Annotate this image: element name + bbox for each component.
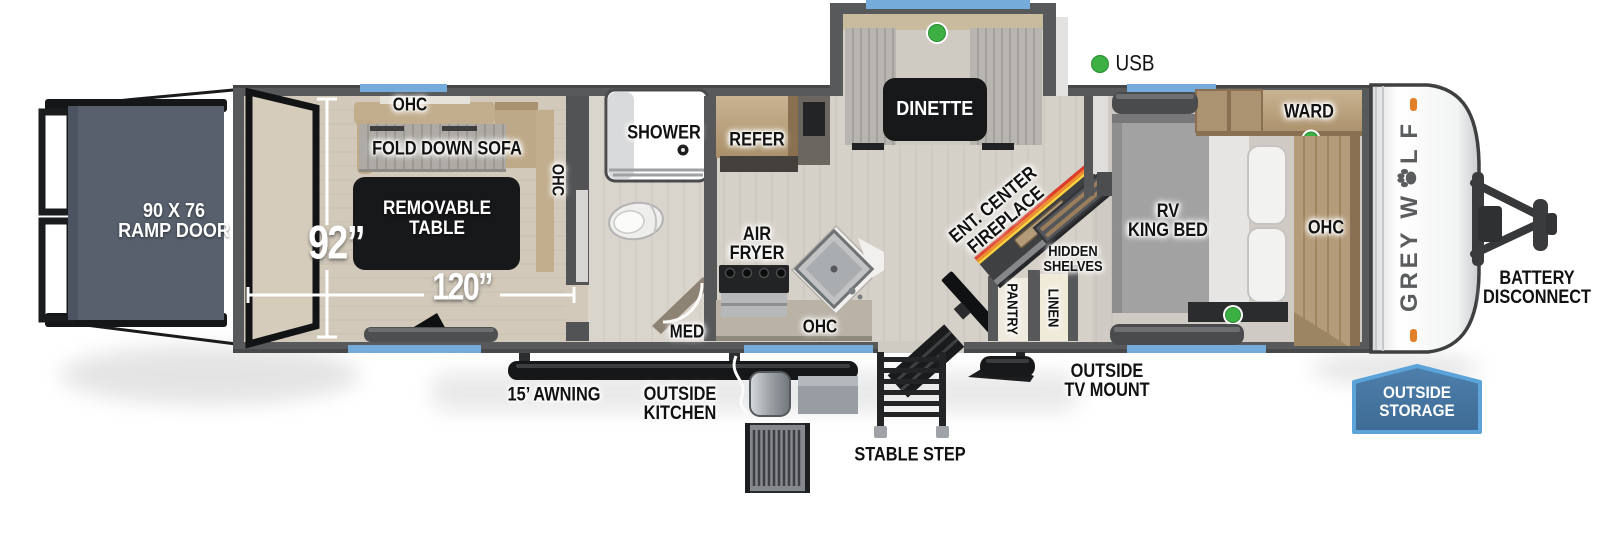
svg-text:GREY W: GREY W (1396, 196, 1423, 312)
